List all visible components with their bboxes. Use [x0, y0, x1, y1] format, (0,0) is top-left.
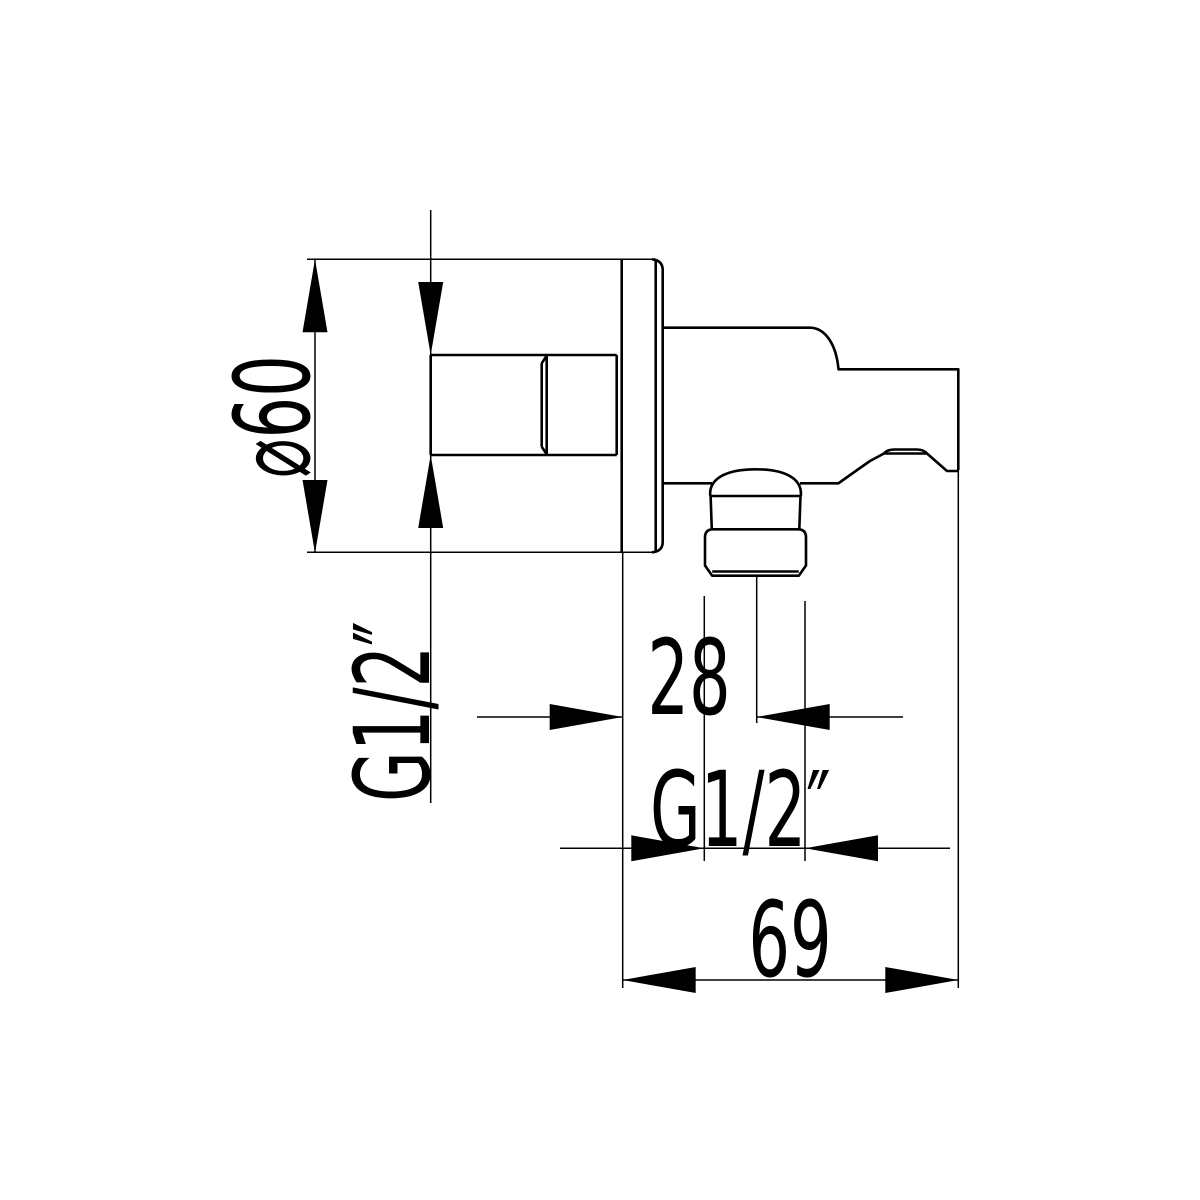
inlet-thread-dimension-label: G1/2″: [333, 621, 454, 802]
arrowhead-depth-left: [623, 967, 696, 993]
part-outlines: [431, 259, 959, 575]
nozzle-dome: [710, 469, 801, 496]
nozzle-taper-left: [711, 496, 712, 529]
holder-hook-profile: [800, 454, 958, 484]
arrowhead-diameter-up: [303, 259, 328, 332]
extension-and-dimension-lines: [307, 210, 958, 988]
depth-dimension-label: 69: [748, 880, 831, 1001]
arrowhead-inlet-up: [418, 455, 443, 528]
escutcheon-ring-edge: [652, 259, 663, 552]
escutcheon-plate-outline: [622, 259, 663, 552]
offset-dimension-label: 28: [647, 618, 730, 739]
technical-drawing: ⌀60 G1/2″ 28 G1/2″ 69: [0, 0, 1200, 1200]
nozzle-taper-right: [799, 496, 800, 529]
outlet-collar-outline: [705, 529, 806, 575]
arrowhead-offset-left: [550, 704, 623, 730]
arrowhead-diameter-down: [303, 480, 328, 553]
diameter-dimension-label: ⌀60: [213, 355, 334, 478]
outlet-nozzle-outline: [705, 469, 806, 575]
arrowhead-offset-right: [757, 704, 830, 730]
inlet-pipe-outline: [431, 355, 617, 455]
holder-arm-outline: [663, 328, 959, 484]
arrowhead-inlet-down: [418, 282, 443, 355]
arrowhead-depth-right: [885, 967, 958, 993]
drawing-canvas: ⌀60 G1/2″ 28 G1/2″ 69: [0, 0, 1200, 1200]
dimension-labels: ⌀60 G1/2″ 28 G1/2″ 69: [213, 355, 831, 1001]
outlet-thread-dimension-label: G1/2″: [650, 750, 831, 871]
